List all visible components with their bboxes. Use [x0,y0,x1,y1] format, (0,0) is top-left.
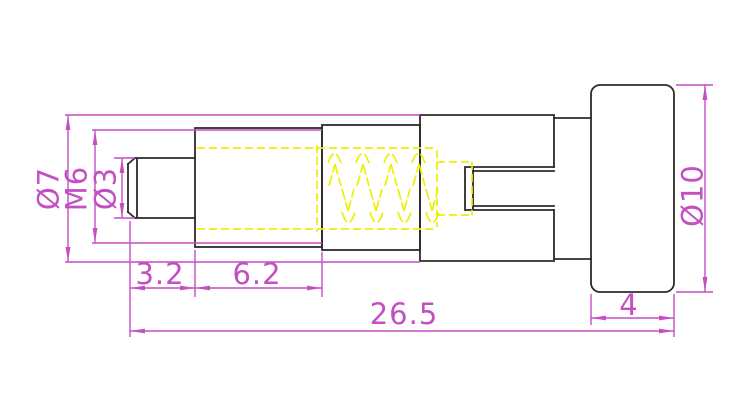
dim-label-6-2: 6.2 [217,260,297,289]
shoulder-outline [554,118,591,259]
dim-label-4: 4 [589,291,669,320]
dim-label-dia10: Ø10 [679,151,708,241]
knob-outline [591,85,674,292]
spring-bore-dashed-lines [197,145,472,232]
dim-label-3-2: 3.2 [120,260,200,289]
dim-label-26-5: 26.5 [354,300,454,329]
pin-tip-outline [128,158,195,218]
shaft-through-slot [473,171,554,206]
part-outline-group [128,85,674,292]
knurled-section-outline [322,125,420,250]
dim-label-dia3: Ø3 [92,154,121,224]
slot-outline [465,167,554,210]
engineering-drawing: Ø7 M6 Ø3 3.2 6.2 26.5 4 Ø10 [0,0,750,419]
spring-coil-lines [328,154,439,223]
dim-label-m6: M6 [63,154,92,224]
hidden-spring-group [197,145,472,232]
body-section-outline [420,115,554,261]
